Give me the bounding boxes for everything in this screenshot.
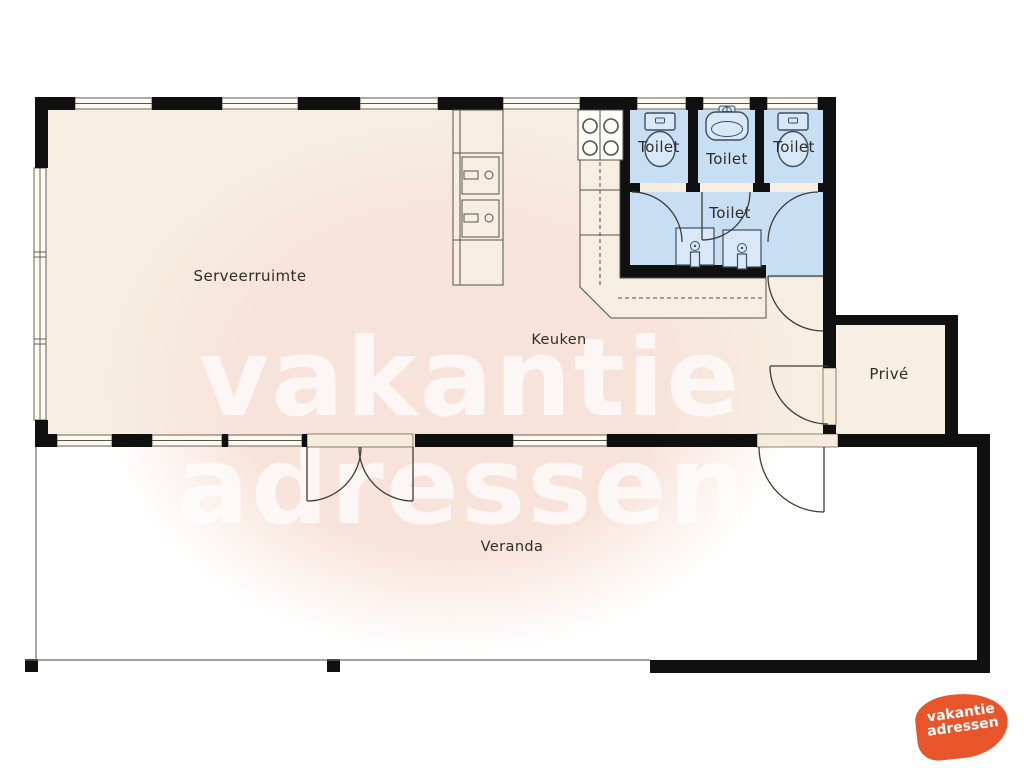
room-label-keuken: Keuken	[531, 332, 586, 348]
veranda-bottom-wall	[650, 660, 990, 673]
room-label-serveerruimte: Serveerruimte	[194, 267, 307, 285]
veranda-post	[25, 659, 38, 672]
room-label-veranda: Veranda	[481, 539, 544, 555]
floor-plan-drawing: vakantie adressen	[0, 0, 1024, 768]
prive-right-wall	[945, 315, 958, 447]
sink-icon	[723, 230, 761, 269]
room-label-toilet-3: Toilet	[773, 138, 815, 156]
room-label-toilet-2: Toilet	[706, 150, 748, 168]
vakantieadressen-logo: vakantie adressen	[912, 692, 1012, 764]
kitchen-island-counter	[453, 110, 503, 285]
room-label-toilet-1: Toilet	[638, 138, 680, 156]
floor-plan: vakantie adressen	[0, 0, 1024, 768]
veranda-right-wall	[977, 434, 990, 673]
prive-top-wall	[836, 315, 958, 325]
prive-door-opening	[823, 368, 836, 425]
veranda-double-door-opening	[307, 434, 413, 447]
room-label-toilet-4: Toilet	[709, 204, 751, 222]
watermark-line1: vakantie	[199, 316, 742, 441]
room-label-prive: Privé	[869, 365, 908, 383]
veranda-single-door-opening	[757, 434, 838, 447]
veranda-post	[327, 659, 340, 672]
stove-icon	[578, 110, 623, 160]
